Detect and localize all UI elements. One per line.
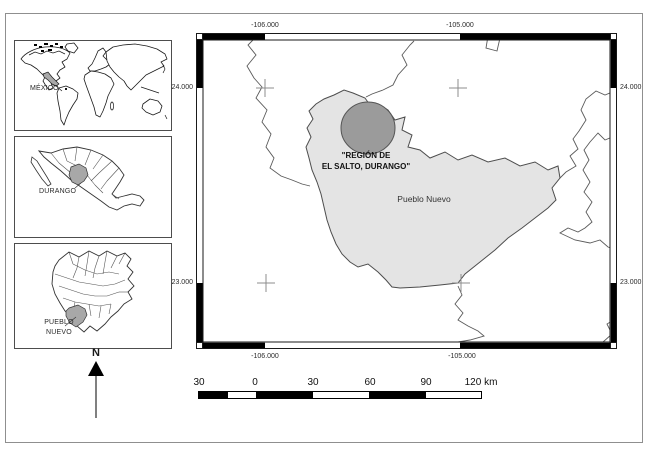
north-arrow-icon: [85, 360, 107, 420]
scale-label-60: 60: [364, 377, 375, 388]
coord-right-24: 24.000: [620, 84, 641, 91]
coord-top-right: -105.000: [446, 22, 474, 29]
map-figure: MÉXICO DURANGO: [0, 0, 647, 458]
north-america-shape: [21, 47, 70, 90]
main-map-canvas: [196, 33, 617, 349]
coord-right-23: 23.000: [620, 279, 641, 286]
coord-bottom-right: -105.000: [448, 353, 476, 360]
mexico-inset-label: DURANGO: [39, 188, 76, 195]
coord-top-left: -106.000: [251, 22, 279, 29]
africa-shape: [84, 71, 114, 117]
mexico-outline: [39, 147, 144, 210]
el-salto-region-circle: [341, 102, 395, 154]
inset-mexico-map: DURANGO: [14, 136, 172, 238]
scale-label-0: 0: [252, 377, 258, 388]
scale-label-30w: 30: [193, 377, 204, 388]
scale-label-90: 90: [420, 377, 431, 388]
municipality-label: Pueblo Nuevo: [397, 194, 450, 204]
south-america-shape: [57, 86, 78, 125]
inset-world-map: MÉXICO: [14, 40, 172, 131]
scale-label-120km: 120 km: [465, 377, 498, 388]
scale-label-30: 30: [307, 377, 318, 388]
baja-peninsula: [31, 157, 51, 186]
coord-left-24: 24.000: [153, 84, 193, 91]
region-label: "REGIÓN DE EL SALTO, DURANGO": [322, 150, 410, 172]
coord-bottom-left: -106.000: [251, 353, 279, 360]
scale-bar: [198, 391, 482, 399]
north-label: N: [92, 347, 100, 359]
world-inset-label: MÉXICO: [30, 85, 59, 92]
pueblo-nuevo-inset-label: PUEBLO NUEVO: [38, 318, 80, 338]
coord-left-23: 23.000: [153, 279, 193, 286]
mexico-states-map: [15, 137, 169, 235]
australia-shape: [142, 99, 162, 115]
inset-durango-map: PUEBLO NUEVO: [14, 243, 172, 349]
